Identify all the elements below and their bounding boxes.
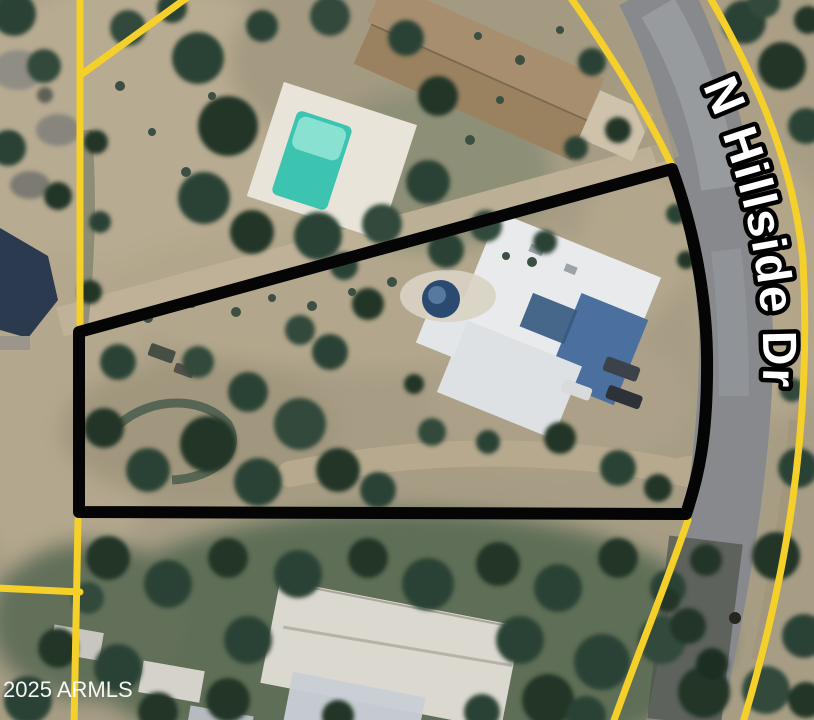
parcel-pool (400, 270, 496, 322)
aerial-map[interactable]: N Hillside Dr 2025 ARMLS (0, 0, 814, 720)
watermark: 2025 ARMLS (3, 677, 133, 702)
lot-line-bottom-branch (0, 588, 80, 592)
aerial-map-canvas[interactable]: N Hillside Dr 2025 ARMLS (0, 0, 814, 720)
